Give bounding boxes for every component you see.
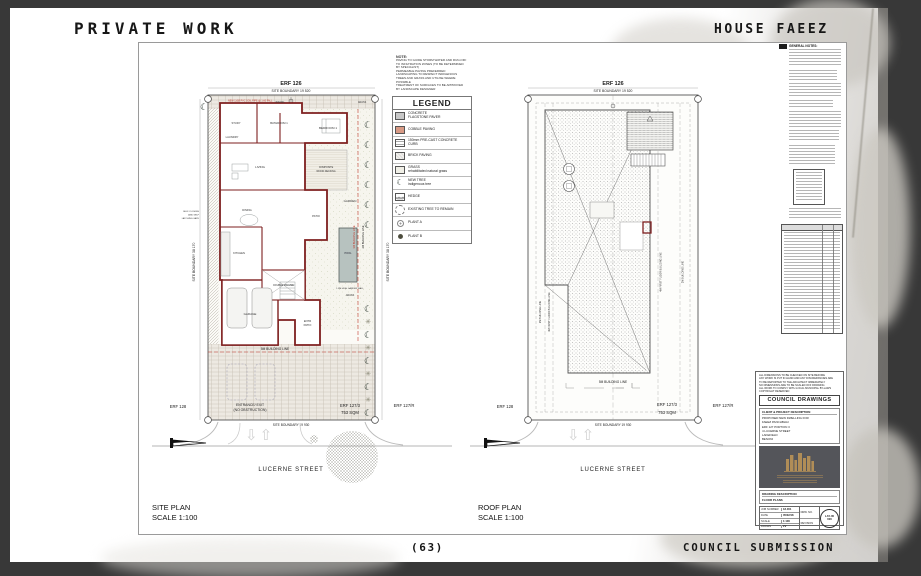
svg-text:☾: ☾	[364, 180, 372, 190]
svg-text:PAVING: PAVING	[276, 101, 285, 104]
area-schedule-table	[781, 224, 843, 334]
svg-text:✳: ✳	[365, 370, 371, 378]
svg-text:BEDROOM 1: BEDROOM 1	[319, 126, 337, 130]
svg-text:POOL: POOL	[345, 252, 353, 255]
page-title-house-faeez: HOUSE FAEEZ	[714, 22, 829, 37]
svg-text:AND SELF: AND SELF	[188, 214, 199, 217]
svg-text:ERF 126: ERF 126	[280, 81, 301, 87]
svg-text:ERF 127/3: ERF 127/3	[340, 403, 361, 408]
notes-paragraph	[789, 145, 835, 165]
notes-paragraph	[789, 130, 839, 142]
title-block: ALL DIMENSIONS TO BE CHECKED ON SITE BEF…	[755, 371, 844, 526]
svg-text:ERF 128: ERF 128	[497, 404, 514, 409]
svg-text:WOOD DECKING: WOOD DECKING	[316, 170, 335, 173]
notes-paragraph	[789, 83, 841, 97]
svg-text:DOUBLE VOLUME: DOUBLE VOLUME	[273, 284, 294, 287]
svg-text:PATIO: PATIO	[312, 214, 320, 218]
svg-text:ERF 127/R: ERF 127/R	[394, 403, 415, 408]
svg-text:(NO OBSTRUCTION): (NO OBSTRUCTION)	[234, 408, 267, 412]
svg-text:ENTR: ENTR	[304, 319, 311, 323]
svg-text:STUDY: STUDY	[231, 121, 240, 125]
svg-text:✳: ✳	[365, 344, 371, 352]
logo-text-lines	[777, 475, 823, 478]
architect-logo	[759, 446, 840, 488]
council-drawings-header: COUNCIL DRAWINGS	[759, 395, 840, 406]
site-plan-drawing: NEW 110Ø PVC SOIL PIPE @ 1:60 FALL STUDY…	[152, 72, 452, 532]
roof-plan-drawing: ERF 126 SITE BOUNDARY 19 520 SITE BOUNDA…	[470, 72, 770, 532]
svg-text:COMPOSITE: COMPOSITE	[319, 166, 334, 169]
svg-text:☾: ☾	[200, 102, 208, 112]
svg-text:1.8M HIGH GARDEN WALL: 1.8M HIGH GARDEN WALL	[336, 287, 364, 290]
notes-paragraph	[789, 100, 833, 108]
drawing-description-header: DRAWING DESCRIPTION	[762, 492, 837, 498]
svg-text:5M BUILDING LINE: 5M BUILDING LINE	[599, 380, 627, 384]
notes-paragraph	[789, 70, 837, 80]
svg-text:PATIO: PATIO	[304, 323, 312, 327]
svg-text:ENTRANCE/ EXIT: ENTRANCE/ EXIT	[236, 403, 264, 407]
svg-text:ERF 127/3: ERF 127/3	[657, 402, 678, 407]
svg-text:4M FIRST FLOOR BUILDING LINE: 4M FIRST FLOOR BUILDING LINE	[548, 292, 551, 332]
svg-text:☾: ☾	[364, 120, 372, 130]
general-notes-title: GENERAL NOTES:	[789, 44, 843, 48]
page-number: (63)	[411, 541, 444, 554]
svg-text:5M BUILDING LINE: 5M BUILDING LINE	[261, 347, 289, 351]
title-block-info-grid: JOB NUMBER18-001 DATE05/02/18 SCALE1:100…	[759, 506, 840, 530]
svg-text:☾: ☾	[364, 304, 372, 314]
presentation-page: PRIVATE WORK HOUSE FAEEZ (63) COUNCIL SU…	[0, 0, 921, 576]
roof-plan-title: ROOF PLAN SCALE 1:100	[478, 503, 523, 522]
svg-text:SITE BOUNDARY 19 930: SITE BOUNDARY 19 930	[273, 423, 310, 427]
svg-text:LIVING: LIVING	[255, 165, 266, 169]
notes-paragraph	[789, 49, 841, 67]
small-plant-sketch	[310, 435, 318, 443]
general-notes-column: GENERAL NOTES:	[779, 44, 843, 334]
svg-text:SELF CLOSING: SELF CLOSING	[183, 211, 199, 213]
existing-tree-sketch	[326, 431, 378, 483]
notes-paragraph	[789, 208, 841, 220]
svg-text:753 SQM: 753 SQM	[658, 410, 676, 415]
svg-text:GRASS: GRASS	[358, 101, 367, 104]
svg-text:☾: ☾	[364, 140, 372, 150]
notes-paragraph	[789, 111, 841, 127]
svg-text:3M BUILDING LINE: 3M BUILDING LINE	[352, 225, 356, 248]
soil-pipe-note: NEW 110Ø PVC SOIL PIPE @ 1:60 FALL	[228, 100, 273, 103]
client-header: CLIENT & PROJECT DESCRIPTION	[762, 410, 837, 416]
svg-text:SITE BOUNDARY 19 520: SITE BOUNDARY 19 520	[272, 89, 311, 93]
svg-text:GARAGE: GARAGE	[244, 312, 257, 316]
street-label: LUCERNE STREET	[580, 467, 645, 473]
svg-text:BATHROOM 1: BATHROOM 1	[270, 121, 288, 125]
title-block-notes: ALL DIMENSIONS TO BE CHECKED ON SITE BEF…	[759, 374, 840, 394]
svg-text:SCALE 1:100: SCALE 1:100	[152, 513, 197, 522]
client-section: CLIENT & PROJECT DESCRIPTION PROPOSED NE…	[759, 408, 840, 444]
svg-text:SITE PLAN: SITE PLAN	[152, 503, 190, 512]
svg-text:☾: ☾	[364, 356, 372, 366]
svg-text:LAUNDRY: LAUNDRY	[226, 135, 239, 139]
svg-text:SITE BOUNDARY 38 170: SITE BOUNDARY 38 170	[192, 242, 196, 281]
corner-marker	[779, 44, 787, 49]
svg-text:ERF 127/R: ERF 127/R	[713, 403, 734, 408]
svg-text:SITE BOUNDARY 19 930: SITE BOUNDARY 19 930	[595, 423, 632, 427]
svg-text:DINING: DINING	[242, 208, 251, 212]
svg-text:☾: ☾	[364, 220, 372, 230]
svg-text:KITCHEN: KITCHEN	[233, 251, 245, 255]
svg-text:SITE BOUNDARY 19 520: SITE BOUNDARY 19 520	[594, 89, 633, 93]
roof-street: ⇩⇧ LUCERNE STREET	[470, 422, 770, 473]
svg-text:☾: ☾	[364, 160, 372, 170]
svg-text:2M BUILDING LINE: 2M BUILDING LINE	[539, 301, 542, 324]
svg-text:SITE BOUNDARY 38 170: SITE BOUNDARY 38 170	[386, 242, 390, 281]
svg-text:GARDEN: GARDEN	[344, 199, 357, 203]
svg-text:☾: ☾	[364, 408, 372, 418]
street: ⇩⇧ LUCERNE STREET	[152, 422, 452, 483]
drawing-description-value: FLOOR PLANS	[762, 498, 837, 502]
svg-text:SCALE 1:100: SCALE 1:100	[478, 513, 523, 522]
page-title-private-work: PRIVATE WORK	[74, 19, 238, 38]
svg-text:☾: ☾	[364, 330, 372, 340]
traffic-arrows: ⇩⇧	[245, 427, 274, 444]
street-label: LUCERNE STREET	[258, 467, 323, 473]
svg-text:ERF 128: ERF 128	[170, 404, 187, 409]
svg-text:GRASS: GRASS	[346, 294, 355, 297]
svg-text:✳: ✳	[365, 396, 371, 404]
site-plan-title: SITE PLAN SCALE 1:100	[152, 503, 197, 522]
svg-text:2M BUILDING LINE: 2M BUILDING LINE	[361, 225, 365, 248]
glazing-schedule-box	[793, 169, 825, 205]
drawing-description-section: DRAWING DESCRIPTION FLOOR PLANS	[759, 490, 840, 505]
svg-text:☾: ☾	[364, 382, 372, 392]
svg-text:ROOF PLAN: ROOF PLAN	[478, 503, 521, 512]
svg-text:2M BUILDING LINE: 2M BUILDING LINE	[682, 261, 685, 284]
svg-text:LATCHING GATE: LATCHING GATE	[182, 217, 200, 220]
page-title-council-submission: COUNCIL SUBMISSION	[683, 542, 835, 554]
logo-text-lines	[783, 480, 817, 483]
svg-text:✳: ✳	[365, 318, 371, 326]
logo-skyline-icon	[780, 451, 820, 473]
svg-text:753 SQM: 753 SQM	[341, 410, 359, 415]
svg-text:☾: ☾	[364, 200, 372, 210]
svg-text:ERF 126: ERF 126	[602, 81, 623, 87]
drawing-number-stamp: LAY-00 000	[820, 509, 839, 528]
svg-text:4M FIRST FLOOR BUILDING LINE: 4M FIRST FLOOR BUILDING LINE	[660, 252, 663, 292]
traffic-arrows: ⇩⇧	[567, 427, 596, 444]
